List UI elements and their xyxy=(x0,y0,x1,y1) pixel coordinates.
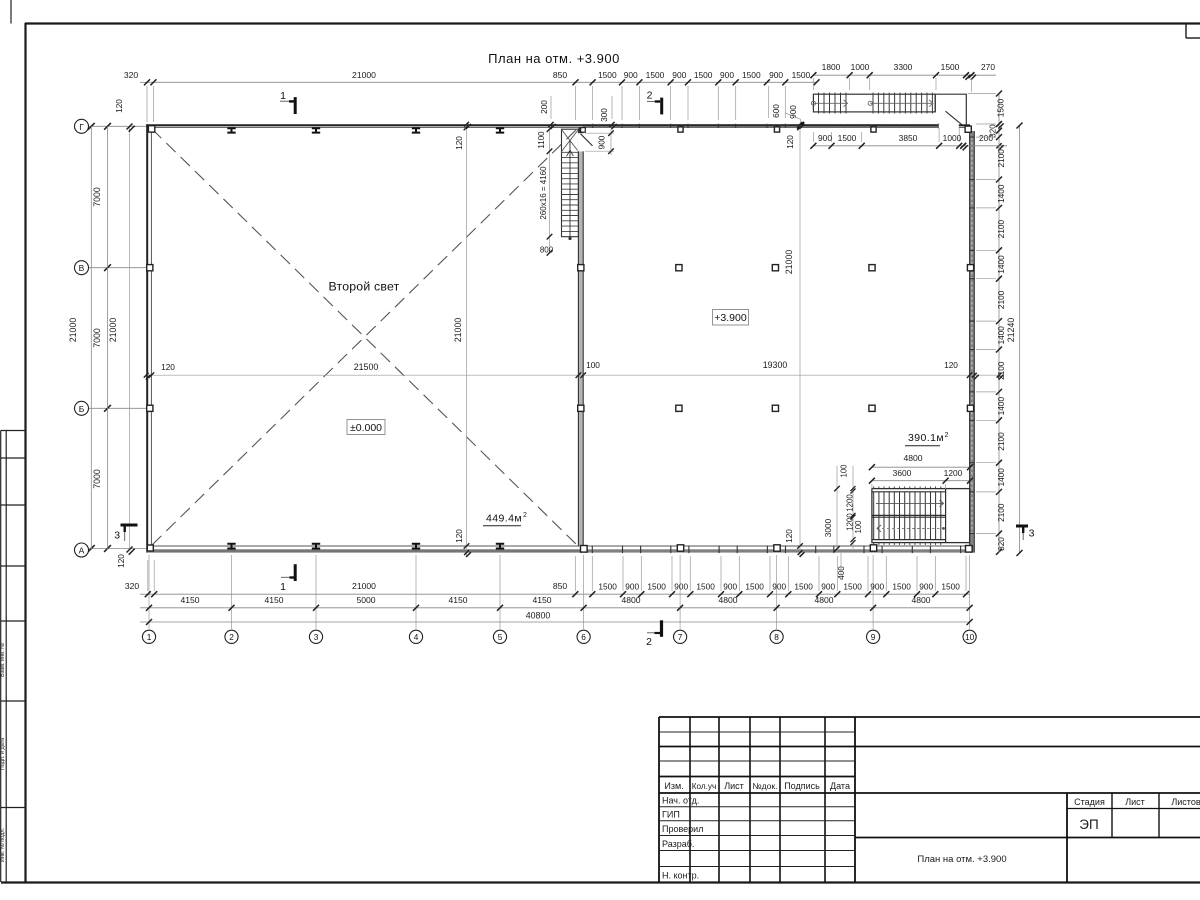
svg-text:ГИП: ГИП xyxy=(662,810,680,820)
svg-text:120: 120 xyxy=(784,529,794,543)
svg-text:Н. контр.: Н. контр. xyxy=(662,871,699,881)
svg-text:План на отм. +3.900: План на отм. +3.900 xyxy=(488,51,620,66)
svg-text:449.4м: 449.4м xyxy=(486,513,522,525)
svg-text:4150: 4150 xyxy=(264,595,283,605)
svg-text:600: 600 xyxy=(771,104,781,118)
svg-text:3: 3 xyxy=(314,632,319,642)
svg-text:1500: 1500 xyxy=(598,70,617,80)
svg-text:9: 9 xyxy=(871,632,876,642)
svg-text:Проверил: Проверил xyxy=(662,824,703,834)
svg-text:1: 1 xyxy=(280,581,286,593)
svg-text:Разраб.: Разраб. xyxy=(662,839,694,849)
svg-text:1400: 1400 xyxy=(996,468,1006,487)
svg-text:900: 900 xyxy=(821,582,835,592)
svg-text:Б: Б xyxy=(79,404,85,414)
svg-text:Стадия: Стадия xyxy=(1074,797,1105,807)
svg-text:±0.000: ±0.000 xyxy=(350,422,382,434)
svg-text:1500: 1500 xyxy=(647,582,666,592)
svg-text:100: 100 xyxy=(586,360,600,370)
svg-text:№док.: №док. xyxy=(752,781,777,791)
svg-text:5: 5 xyxy=(498,632,503,642)
svg-text:1500: 1500 xyxy=(598,582,617,592)
svg-text:120: 120 xyxy=(944,360,958,370)
svg-text:120: 120 xyxy=(454,529,464,543)
svg-text:900: 900 xyxy=(723,582,737,592)
svg-text:390.1м: 390.1м xyxy=(908,432,944,444)
svg-text:3600: 3600 xyxy=(893,468,912,478)
svg-text:120: 120 xyxy=(785,135,795,149)
svg-text:2100: 2100 xyxy=(996,503,1006,522)
svg-text:100: 100 xyxy=(840,464,849,478)
svg-text:2: 2 xyxy=(646,636,652,648)
svg-text:1200: 1200 xyxy=(846,494,855,512)
svg-text:21240: 21240 xyxy=(1006,318,1016,343)
svg-text:3000: 3000 xyxy=(823,518,833,537)
svg-text:120: 120 xyxy=(114,99,124,113)
svg-text:21000: 21000 xyxy=(108,318,118,343)
svg-text:1400: 1400 xyxy=(996,184,1006,203)
svg-text:Нач. отд.: Нач. отд. xyxy=(662,796,699,806)
svg-text:320: 320 xyxy=(125,581,140,591)
svg-text:120: 120 xyxy=(116,554,126,568)
svg-text:10: 10 xyxy=(965,632,975,642)
svg-text:2: 2 xyxy=(647,90,653,102)
svg-text:40800: 40800 xyxy=(526,611,551,621)
svg-text:320: 320 xyxy=(124,70,139,80)
svg-text:270: 270 xyxy=(981,62,995,72)
svg-text:7000: 7000 xyxy=(92,187,102,207)
svg-text:19300: 19300 xyxy=(763,360,788,370)
svg-text:120: 120 xyxy=(161,362,175,372)
svg-text:1500: 1500 xyxy=(843,582,862,592)
svg-text:Изм.: Изм. xyxy=(664,781,683,791)
svg-text:Лист: Лист xyxy=(724,781,744,791)
svg-text:1000: 1000 xyxy=(851,62,870,72)
svg-text:4150: 4150 xyxy=(448,595,467,605)
svg-text:Взам. инв. №: Взам. инв. № xyxy=(0,643,6,677)
svg-text:900: 900 xyxy=(672,70,686,80)
svg-text:План на отм. +3.900: План на отм. +3.900 xyxy=(917,854,1006,865)
svg-text:1500: 1500 xyxy=(794,582,813,592)
svg-text:Второй свет: Второй свет xyxy=(329,280,400,294)
svg-text:3300: 3300 xyxy=(894,62,913,72)
svg-text:900: 900 xyxy=(597,135,607,149)
svg-text:300: 300 xyxy=(599,108,609,122)
svg-text:21000: 21000 xyxy=(352,581,376,591)
svg-text:Лист: Лист xyxy=(1125,797,1145,807)
svg-text:1000: 1000 xyxy=(943,133,962,143)
svg-text:21000: 21000 xyxy=(352,70,376,80)
svg-text:2: 2 xyxy=(229,632,234,642)
svg-text:2100: 2100 xyxy=(996,290,1006,309)
svg-text:1500: 1500 xyxy=(941,582,960,592)
svg-text:+3.900: +3.900 xyxy=(714,312,747,324)
svg-text:4800: 4800 xyxy=(903,453,922,463)
svg-text:21500: 21500 xyxy=(354,362,379,372)
svg-text:Листов: Листов xyxy=(1171,797,1200,807)
svg-text:Дата: Дата xyxy=(830,781,850,791)
svg-text:4800: 4800 xyxy=(621,595,640,605)
svg-text:3: 3 xyxy=(114,530,120,542)
svg-text:7000: 7000 xyxy=(92,469,102,489)
svg-text:7: 7 xyxy=(678,632,683,642)
svg-text:21000: 21000 xyxy=(784,250,794,275)
svg-text:В: В xyxy=(79,263,85,273)
svg-text:320: 320 xyxy=(989,124,998,138)
svg-text:900: 900 xyxy=(720,70,734,80)
svg-text:1500: 1500 xyxy=(838,133,857,143)
svg-text:850: 850 xyxy=(553,581,568,591)
svg-text:260x16 = 4160: 260x16 = 4160 xyxy=(539,166,548,220)
svg-text:1400: 1400 xyxy=(996,255,1006,274)
svg-text:1400: 1400 xyxy=(996,326,1006,345)
svg-text:А: А xyxy=(79,546,85,556)
svg-text:21000: 21000 xyxy=(68,318,78,343)
svg-text:900: 900 xyxy=(772,582,786,592)
svg-text:3850: 3850 xyxy=(899,133,918,143)
svg-text:4800: 4800 xyxy=(718,595,737,605)
svg-text:1500: 1500 xyxy=(996,98,1006,117)
svg-text:120: 120 xyxy=(454,136,464,150)
svg-text:1: 1 xyxy=(147,632,152,642)
svg-text:900: 900 xyxy=(870,582,884,592)
svg-text:4150: 4150 xyxy=(532,595,551,605)
svg-text:1200: 1200 xyxy=(944,468,963,478)
svg-text:4150: 4150 xyxy=(180,595,199,605)
svg-text:4800: 4800 xyxy=(814,595,833,605)
svg-text:1100: 1100 xyxy=(537,131,546,149)
svg-text:1500: 1500 xyxy=(646,70,665,80)
svg-text:1400: 1400 xyxy=(996,396,1006,415)
svg-text:820: 820 xyxy=(996,537,1006,551)
svg-text:800: 800 xyxy=(540,246,554,255)
svg-text:900: 900 xyxy=(625,582,639,592)
svg-text:Кол.уч: Кол.уч xyxy=(692,782,717,791)
svg-text:2100: 2100 xyxy=(996,219,1006,238)
svg-text:2100: 2100 xyxy=(996,432,1006,451)
svg-text:900: 900 xyxy=(769,70,783,80)
svg-text:900: 900 xyxy=(818,133,832,143)
svg-text:4: 4 xyxy=(414,632,419,642)
svg-text:ЭП: ЭП xyxy=(1079,817,1098,832)
svg-text:21000: 21000 xyxy=(453,318,463,343)
svg-text:900: 900 xyxy=(674,582,688,592)
svg-text:6: 6 xyxy=(581,632,586,642)
svg-text:1: 1 xyxy=(280,90,286,102)
svg-text:1500: 1500 xyxy=(694,70,713,80)
svg-text:900: 900 xyxy=(919,582,933,592)
svg-text:1800: 1800 xyxy=(822,62,841,72)
svg-text:Инв. № подл.: Инв. № подл. xyxy=(0,827,6,862)
svg-text:2100: 2100 xyxy=(996,149,1006,168)
svg-text:850: 850 xyxy=(553,70,568,80)
svg-text:1500: 1500 xyxy=(742,70,761,80)
svg-text:Подпись: Подпись xyxy=(784,781,820,791)
svg-text:100: 100 xyxy=(854,520,863,534)
svg-text:3: 3 xyxy=(1029,528,1035,540)
svg-text:Г: Г xyxy=(79,122,84,132)
svg-text:1500: 1500 xyxy=(696,582,715,592)
svg-text:Подп. и дата: Подп. и дата xyxy=(0,737,6,770)
svg-text:1500: 1500 xyxy=(892,582,911,592)
svg-text:1500: 1500 xyxy=(941,62,960,72)
svg-text:900: 900 xyxy=(788,105,798,119)
svg-text:2: 2 xyxy=(523,512,527,519)
svg-text:7000: 7000 xyxy=(92,328,102,348)
svg-text:1500: 1500 xyxy=(745,582,764,592)
svg-text:200: 200 xyxy=(539,100,549,114)
svg-text:1500: 1500 xyxy=(792,70,811,80)
svg-text:5000: 5000 xyxy=(356,595,375,605)
svg-text:8: 8 xyxy=(774,632,779,642)
svg-text:2: 2 xyxy=(945,432,949,439)
svg-text:900: 900 xyxy=(624,70,638,80)
svg-text:4800: 4800 xyxy=(911,595,930,605)
